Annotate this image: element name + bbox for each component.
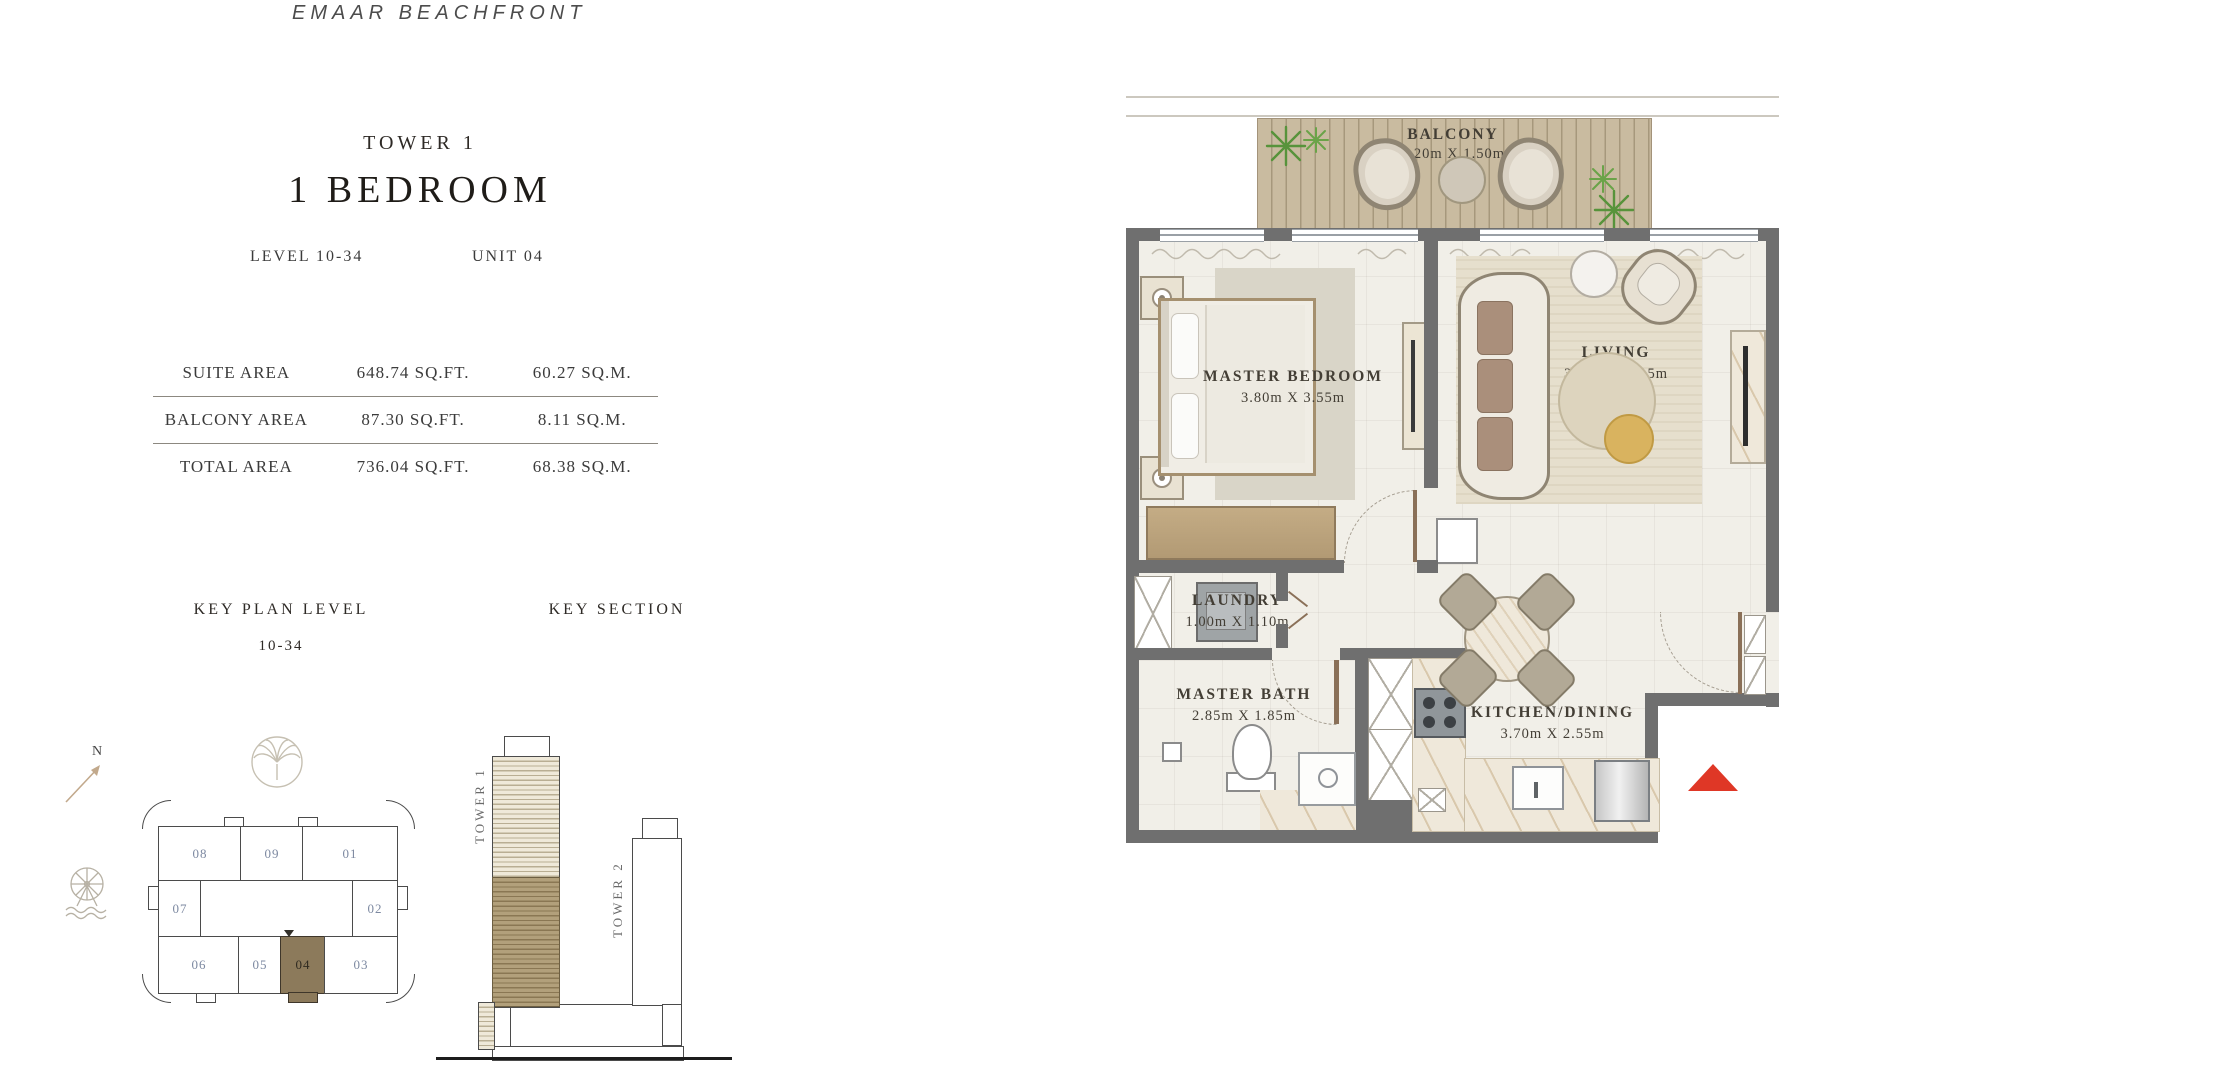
tower1-highlight-band	[492, 877, 560, 1007]
key-plan-unit-08: 08	[158, 826, 242, 882]
key-plan-unit-03: 03	[324, 936, 398, 994]
entry-closet	[1744, 615, 1766, 654]
unit-number: 01	[343, 846, 358, 862]
shaft	[1436, 518, 1478, 564]
washing-machine-icon	[1196, 582, 1258, 642]
key-plan-title: KEY PLAN LEVEL	[150, 601, 412, 619]
curtain-line	[1150, 246, 1290, 260]
sliding-door	[1480, 229, 1604, 242]
wall	[1276, 573, 1288, 601]
entry-door-leaf	[1738, 612, 1742, 694]
key-plan-level: 10-34	[150, 638, 412, 655]
unit-04-balcony-stub	[288, 992, 318, 1003]
tower1-lower-step	[478, 1002, 495, 1050]
bath-name: MASTER BATH	[1148, 686, 1340, 704]
bedroom-name: MASTER BEDROOM	[1178, 368, 1408, 386]
area-sqft: 87.30 SQ.FT.	[320, 410, 507, 430]
tower2-leg	[662, 1004, 682, 1046]
burner	[1423, 716, 1435, 728]
key-plan-unit-01: 01	[302, 826, 398, 882]
unit-number: 04	[296, 957, 311, 973]
ground-line	[436, 1057, 732, 1060]
balcony-table	[1438, 156, 1486, 204]
tower-title: TOWER 1	[280, 132, 560, 155]
laundry-dims: 1.00m X 1.10m	[1150, 614, 1325, 631]
kitchen-sink	[1512, 766, 1564, 810]
north-arrow-icon	[58, 756, 110, 808]
sink-drain	[1318, 768, 1338, 788]
plot-line	[1126, 115, 1779, 117]
tower2-body	[632, 838, 682, 1006]
plot-line	[1126, 96, 1779, 98]
tower1-label: TOWER 1	[472, 754, 488, 858]
window	[1160, 229, 1264, 242]
wall	[1766, 228, 1779, 612]
headboard	[1161, 301, 1169, 467]
unit-number: 07	[173, 901, 188, 917]
wall	[1276, 624, 1288, 648]
wall	[1126, 228, 1139, 843]
building-corner	[142, 800, 171, 829]
podium	[510, 1004, 664, 1050]
wall	[1355, 660, 1368, 843]
sofa-cushion	[1477, 417, 1513, 471]
armchair-cushion	[1632, 258, 1685, 311]
key-plan-core	[200, 880, 354, 938]
bath-fixture	[1162, 742, 1182, 762]
brand-title: EMAAR BEACHFRONT	[292, 2, 852, 25]
sliding-door	[1292, 229, 1418, 242]
unit-04-marker	[284, 930, 294, 937]
shower	[1368, 729, 1414, 802]
area-table: SUITE AREA 648.74 SQ.FT. 60.27 SQ.M. BAL…	[153, 350, 658, 490]
wall	[1417, 560, 1438, 573]
kitchen-dims: 3.70m X 2.55m	[1440, 726, 1665, 743]
area-sqm: 68.38 SQ.M.	[506, 457, 658, 477]
bedroom-door-leaf	[1413, 490, 1417, 562]
area-label: BALCONY AREA	[153, 410, 320, 430]
key-plan-unit-02: 02	[352, 880, 398, 938]
area-sqm: 60.27 SQ.M.	[506, 363, 658, 383]
unit-number: 06	[192, 957, 207, 973]
wall	[1126, 648, 1272, 660]
floor-shaft	[1418, 788, 1446, 812]
wall	[1424, 241, 1438, 488]
unit-label: UNIT 04	[472, 248, 592, 266]
entry-closet	[1744, 656, 1766, 695]
fridge-icon	[1594, 760, 1650, 822]
tv-console	[1730, 330, 1766, 464]
toilet-icon	[1232, 724, 1272, 780]
north-label: N	[92, 744, 103, 760]
building-corner	[386, 800, 415, 829]
table-row: TOTAL AREA 736.04 SQ.FT. 68.38 SQ.M.	[153, 444, 658, 490]
table-row: SUITE AREA 648.74 SQ.FT. 60.27 SQ.M.	[153, 350, 658, 396]
tower2-label: TOWER 2	[610, 848, 626, 952]
unit-number: 02	[368, 901, 383, 917]
window	[1650, 229, 1758, 242]
key-plan-unit-04-highlighted: 04	[280, 936, 326, 994]
key-plan-unit-07: 07	[158, 880, 202, 938]
side-stool	[1604, 414, 1654, 464]
tower2-cap	[642, 818, 678, 840]
area-label: SUITE AREA	[153, 363, 320, 383]
unit-number: 08	[193, 846, 208, 862]
tower1-body	[492, 756, 560, 1008]
entrance-marker-icon	[1688, 764, 1738, 791]
side-table	[1570, 250, 1618, 298]
key-plan-unit-06: 06	[158, 936, 240, 994]
wall	[1368, 800, 1412, 830]
dresser	[1146, 506, 1336, 560]
bed	[1158, 298, 1316, 476]
unit-type-title: 1 BEDROOM	[255, 168, 585, 212]
level-label: LEVEL 10-34	[250, 248, 400, 266]
tower1-cap	[504, 736, 550, 758]
area-sqm: 8.11 SQ.M.	[506, 410, 658, 430]
table-row: BALCONY AREA 87.30 SQ.FT. 8.11 SQ.M.	[153, 397, 658, 443]
burner	[1423, 697, 1435, 709]
wall	[1126, 560, 1344, 573]
area-label: TOTAL AREA	[153, 457, 320, 477]
unit-number: 09	[265, 846, 280, 862]
brochure-page: EMAAR BEACHFRONT TOWER 1 1 BEDROOM LEVEL…	[0, 0, 2220, 1080]
curtain-line	[1356, 246, 1420, 260]
ferris-wheel-icon	[60, 862, 114, 922]
plant-icon	[1592, 188, 1636, 232]
sink-vanity	[1298, 752, 1356, 806]
shower	[1368, 658, 1414, 731]
bedroom-dims: 3.80m X 3.55m	[1178, 390, 1408, 407]
plant-icon	[1302, 126, 1330, 154]
kitchen-name: KITCHEN/DINING	[1440, 704, 1665, 722]
bath-dims: 2.85m X 1.85m	[1148, 708, 1340, 725]
palm-island-icon	[246, 734, 308, 800]
unit-number: 05	[253, 957, 268, 973]
tv-icon	[1411, 340, 1415, 432]
faucet-icon	[1534, 782, 1538, 798]
tv-icon	[1743, 346, 1748, 446]
key-plan-unit-09: 09	[240, 826, 304, 882]
area-sqft: 736.04 SQ.FT.	[320, 457, 507, 477]
key-plan-unit-05: 05	[238, 936, 282, 994]
area-sqft: 648.74 SQ.FT.	[320, 363, 507, 383]
sofa	[1458, 272, 1550, 500]
key-section-title: KEY SECTION	[512, 601, 722, 619]
unit-number: 03	[354, 957, 369, 973]
